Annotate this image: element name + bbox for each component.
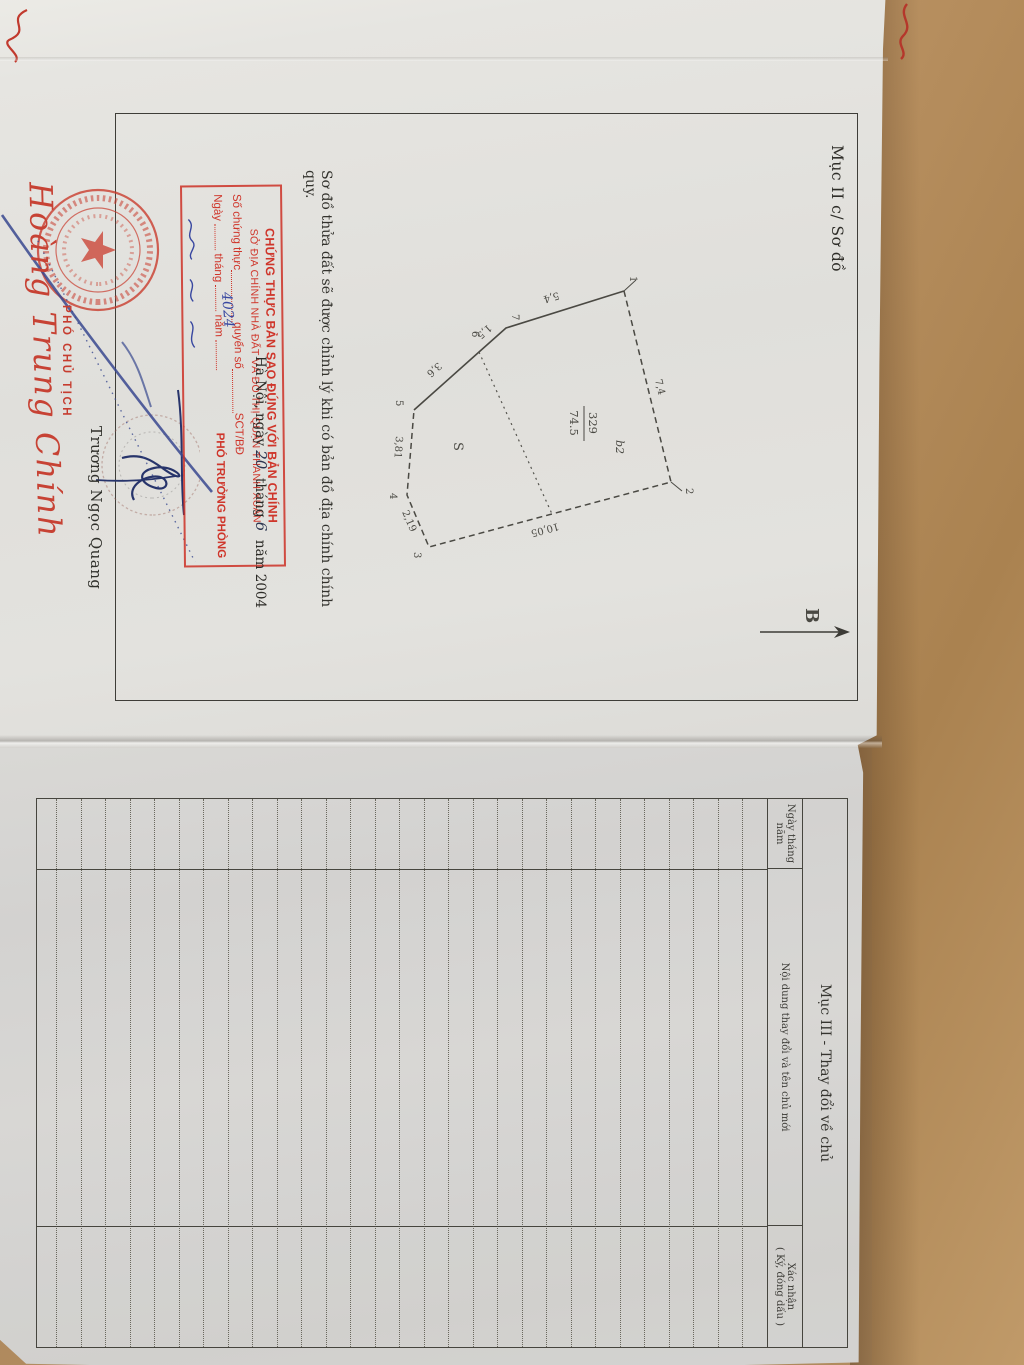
date-suffix: năm 2004 [252,540,268,608]
parcel-diagram: 1 2 3 4 5 6 7 7,4 10,05 2,19 3,81 3,6 1,… [368,230,710,602]
date-prefix: Hà Nội, ngày [252,356,268,446]
edge-length-23: 10,05 [530,520,561,538]
dotted-leader [232,369,243,413]
top-crease [0,57,888,61]
photographed-document-scene: Mục II c/ Sơ đồ B 1 2 3 4 5 6 7 [0,0,1024,1365]
stamp-line4: Ngày tháng năm PHÓ TRƯỞNG PHÒNG [211,194,229,558]
certification-stamp-box: CHỨNG THỰC BẢN SAO ĐÚNG VỚI BẢN CHÍNH SỞ… [180,184,286,567]
stamp-sct-bd: SCT/BĐ [232,413,244,455]
date-thang: tháng [252,478,268,518]
date-month-handwritten: 6 [252,522,270,532]
north-label: B [801,608,822,623]
vertex2-tick [671,482,682,491]
vertex-label-2: 2 [683,488,694,494]
dotted-leader [216,340,227,370]
edge-length-56: 3,6 [424,360,443,379]
edge-length-12: 7,4 [652,378,667,396]
parcel-number: 329 [586,412,600,434]
edge-length-71: 5,4 [542,289,560,304]
muc2-heading: Mục II c/ Sơ đồ [828,145,846,272]
north-arrow-icon: B [752,600,852,670]
parcel-divider-dotted [479,352,552,514]
edge-length-67: 1,5 [474,322,493,341]
stamp-signer-title: PHÓ TRƯỞNG PHÒNG [214,433,227,559]
parcel-area: 74.5 [567,410,581,436]
fold-crease [0,735,882,748]
handwritten-certification-number: 4024 [218,291,237,328]
stamp-ngay-thang-nam: Ngày tháng năm [211,194,227,370]
issue-date-line: Hà Nội, ngày 20 tháng 6 năm 2004 [252,356,270,608]
region-label: S [450,442,465,451]
parcel-edge-solid [414,291,624,410]
date-day-handwritten: 20 [252,450,270,469]
zone-label: b2 [613,440,626,454]
vertex-label-4: 4 [387,493,398,499]
lower-half-shading [0,748,872,1365]
red-edge-squiggle [893,2,923,62]
stamp-quyen-so: quyển số [231,322,243,369]
vertex-label-7: 7 [509,314,520,320]
stamp-line3: Số chứng thực quyển số SCT/BĐ [230,194,246,558]
stamp-so-chung-thuc: Số chứng thực [230,194,243,270]
revision-note: Sơ đồ thửa đất sẽ được chỉnh lý khi có b… [302,170,334,640]
dotted-leader [214,224,225,250]
vertex-label-3: 3 [411,552,422,558]
handwritten-date-squiggle [182,217,200,367]
edge-length-45: 3,81 [391,436,404,459]
vertex-label-5: 5 [393,400,404,406]
signer-name-right: Trương Ngọc Quang [87,426,105,590]
vertex-label-1: 1 [627,276,638,282]
parcel-edge-dashed [407,291,671,547]
